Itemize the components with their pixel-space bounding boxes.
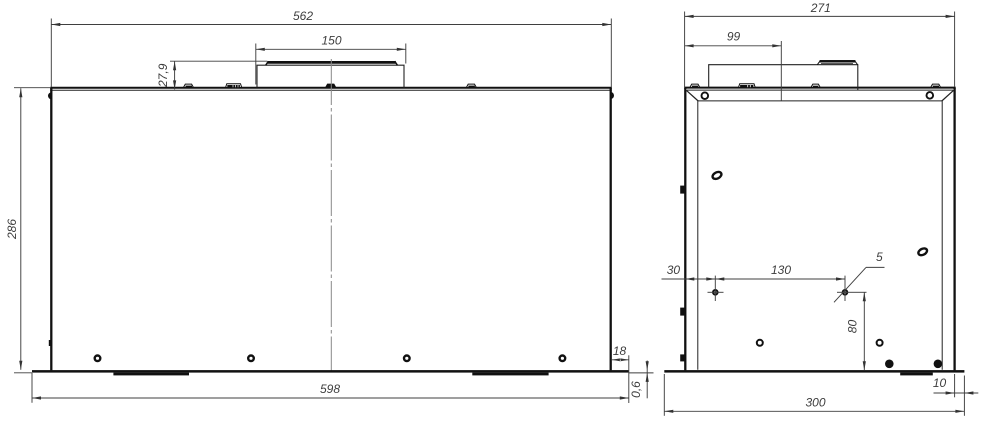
svg-text:99: 99 [727,30,741,44]
svg-text:598: 598 [320,382,340,396]
svg-text:80: 80 [846,320,860,334]
svg-text:18: 18 [613,344,627,358]
svg-text:10: 10 [933,376,947,390]
svg-text:271: 271 [810,1,831,15]
svg-text:0,6: 0,6 [629,381,643,398]
svg-text:5: 5 [876,250,883,264]
svg-text:130: 130 [771,263,791,277]
svg-text:27,9: 27,9 [156,63,170,88]
svg-text:300: 300 [805,396,825,410]
svg-text:150: 150 [321,33,341,47]
svg-text:562: 562 [293,9,313,23]
svg-text:30: 30 [667,263,681,277]
svg-text:286: 286 [5,219,19,240]
